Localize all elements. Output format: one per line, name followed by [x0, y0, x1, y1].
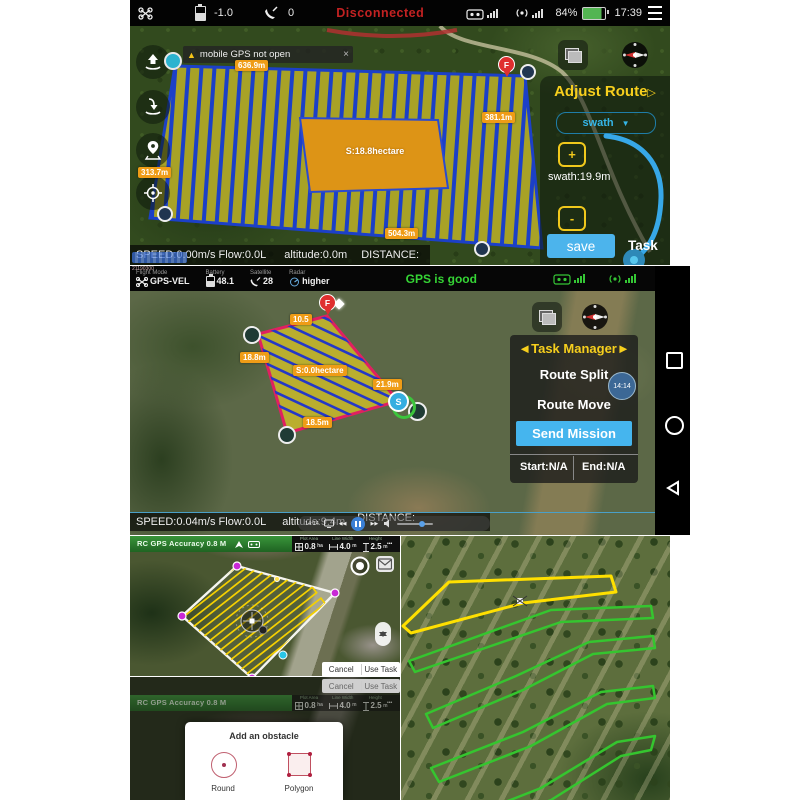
cancel-button[interactable]: Cancel	[322, 682, 361, 691]
edge-length-label: 21.9m	[373, 379, 402, 390]
status-bar: 21190300 Flight Mode GPS-VEL Battery 48.…	[130, 266, 690, 291]
warning-icon: ▲	[187, 50, 196, 60]
screencast-icon	[324, 519, 334, 528]
task-label[interactable]: Task	[628, 238, 658, 253]
decrease-button[interactable]: -	[558, 206, 586, 231]
radar-icon	[289, 277, 300, 287]
satellite-count: 0	[288, 7, 294, 19]
screenshot-collage: -1.0 0 Disconnected 84% 17:39	[0, 0, 800, 800]
remote-controller-icon	[466, 7, 484, 20]
clock: 17:39	[614, 7, 642, 19]
start-marker[interactable]	[164, 52, 182, 70]
vertex-handle[interactable]	[520, 64, 536, 80]
line-width-stat: Line Width 4.0m	[329, 537, 357, 551]
divider	[510, 454, 638, 455]
recents-button[interactable]	[666, 352, 683, 369]
left-arrow-icon[interactable]: ◄	[518, 341, 531, 356]
pause-button[interactable]	[351, 517, 365, 531]
use-task-button[interactable]: Use Task	[362, 682, 401, 691]
connection-status: Disconnected	[336, 6, 424, 20]
envelope-icon	[378, 558, 392, 570]
dialog-title: Add an obstacle	[185, 731, 343, 741]
land-button[interactable]	[136, 90, 170, 124]
edge-length-label: 10.5	[290, 314, 312, 325]
back-button[interactable]	[665, 480, 681, 496]
status-bar: -1.0 0 Disconnected 84% 17:39	[130, 0, 670, 26]
battery-level-icon	[582, 7, 606, 20]
expand-arrow-icon[interactable]: ▷	[647, 87, 655, 99]
video-time: 14:14	[305, 521, 319, 527]
task-action-bar-dimmed: Cancel Use Task	[322, 679, 400, 693]
waypoint-button[interactable]	[136, 133, 170, 167]
watermark	[132, 252, 187, 263]
edge-length-label: 18.8m	[240, 352, 269, 363]
send-mission-button[interactable]: Send Mission	[516, 421, 632, 446]
panel-route-planner: -1.0 0 Disconnected 84% 17:39	[130, 0, 670, 265]
overlay-id: 21190300	[132, 266, 154, 272]
use-task-button[interactable]: Use Task	[362, 665, 401, 674]
divider	[130, 512, 655, 513]
cancel-button[interactable]: Cancel	[322, 665, 361, 674]
plot-area-stat: Plot Area 0.8ha	[295, 537, 323, 551]
polygon-option[interactable]: Polygon	[278, 784, 320, 793]
start-time: Start:N/A	[520, 461, 568, 473]
battery-group: Battery 48.1	[206, 270, 235, 288]
vertex-handle[interactable]	[233, 562, 241, 570]
round-obstacle-icon[interactable]	[211, 752, 237, 778]
compass-icon[interactable]	[621, 41, 649, 69]
home-button[interactable]	[665, 416, 684, 435]
speaker-icon[interactable]	[383, 519, 392, 528]
gps-warning-banner: ▲ mobile GPS not open ×	[183, 46, 353, 63]
video-controls: 14:14 ◀◀ ▶▶	[298, 516, 490, 531]
land-icon	[142, 97, 164, 117]
layers-button[interactable]	[558, 40, 588, 70]
edge-length-label: 636.9m	[235, 60, 268, 71]
altitude: altitude:0.0m	[284, 249, 347, 261]
route-overlay	[401, 536, 670, 800]
round-option[interactable]: Round	[203, 784, 243, 793]
time-badge: 14:14	[608, 372, 636, 400]
remote-controller-icon	[553, 272, 571, 285]
start-marker[interactable]: S	[388, 391, 409, 412]
green-route	[449, 736, 655, 800]
panel-add-obstacle: Cancel Use Task RC GPS Accuracy 0.8 M Pl…	[130, 677, 400, 800]
speed-flow: SPEED:0.04m/s Flow:0.0L	[136, 516, 266, 528]
area-label: S:18.8hectare	[315, 146, 435, 156]
link-signal-bars	[532, 9, 543, 18]
panel-title: Adjust Route▷	[540, 83, 670, 100]
pointer-icon	[234, 540, 244, 549]
save-button[interactable]: save	[547, 234, 615, 258]
rewind-icon[interactable]: ◀◀	[339, 521, 347, 527]
orchard-aerial-photo	[401, 536, 670, 800]
distance: DISTANCE:	[361, 249, 419, 261]
satellite-group: Satellite 28	[250, 270, 273, 287]
compass-icon[interactable]	[581, 303, 609, 331]
task-action-bar: Cancel Use Task	[322, 662, 400, 676]
zoom-stepper[interactable]	[375, 622, 391, 646]
warning-text: mobile GPS not open	[200, 49, 290, 60]
edge-length-label: 381.1m	[482, 112, 515, 123]
vertex-handle[interactable]	[243, 326, 261, 344]
drone-icon	[138, 7, 153, 20]
edge-length-label: 18.5m	[303, 417, 332, 428]
task-manager-panel: ◄Task Manager► Route Split 14:14 Route M…	[510, 335, 638, 483]
vertex-handle[interactable]	[157, 206, 173, 222]
gps-accuracy: RC GPS Accuracy 0.8 M	[137, 539, 226, 548]
layers-button[interactable]	[532, 302, 562, 332]
layers-icon	[565, 48, 581, 62]
green-route	[426, 636, 655, 728]
height-stat: Height 2.5m	[363, 537, 388, 552]
battery-icon	[195, 6, 206, 21]
rc-signal-bars	[574, 274, 585, 283]
add-obstacle-dialog: Add an obstacle Round Polygon	[185, 722, 343, 800]
flight-mode-group: Flight Mode GPS-VEL	[136, 270, 190, 287]
edge-length-label: 504.3m	[385, 228, 418, 239]
vertex-handle[interactable]	[474, 241, 490, 257]
vertex-handle[interactable]	[178, 612, 186, 620]
finish-marker[interactable]: F	[498, 56, 515, 73]
gallery-button[interactable]	[376, 556, 394, 572]
satellite-dish-icon	[263, 6, 278, 20]
location-pin-icon	[142, 140, 164, 160]
menu-icon[interactable]	[648, 6, 662, 20]
forward-icon[interactable]: ▶▶	[370, 521, 378, 527]
area-label: S:0.0hectare	[293, 365, 347, 376]
divider	[573, 456, 574, 480]
antenna-icon	[514, 6, 530, 20]
panel-title: ◄Task Manager►	[510, 341, 638, 356]
increase-button[interactable]: +	[558, 142, 586, 167]
android-nav-bar	[655, 266, 690, 535]
panel-task-manager: 21190300 Flight Mode GPS-VEL Battery 48.…	[130, 266, 690, 535]
plot-area-icon	[295, 543, 303, 551]
swath-value: swath:19.9m	[548, 171, 610, 183]
panel-plot-editor: RC GPS Accuracy 0.8 M Plot Area 0.8ha Li…	[130, 536, 400, 676]
vertex-handle[interactable]	[331, 589, 339, 597]
takeoff-icon	[142, 52, 164, 72]
crosshair-icon	[142, 182, 164, 204]
chevron-down-icon: ▼	[622, 119, 630, 128]
right-arrow-icon[interactable]: ►	[617, 341, 630, 356]
green-route	[431, 686, 655, 782]
rc-signal-bars	[487, 9, 498, 18]
height-icon	[363, 543, 369, 552]
antenna-icon	[607, 272, 623, 286]
close-icon[interactable]: ×	[343, 49, 349, 60]
line-width-icon	[329, 544, 338, 550]
finish-marker[interactable]: F	[319, 294, 336, 311]
locate-button[interactable]	[136, 176, 170, 210]
gps-status: GPS is good	[406, 272, 477, 286]
rc-gps-bar-dimmed: RC GPS Accuracy 0.8 M Plot Area 0.8ha Li…	[130, 695, 400, 711]
edge-length-label: 313.7m	[138, 167, 171, 178]
edge-midpoint-handle[interactable]	[275, 577, 280, 582]
layers-icon	[539, 310, 555, 324]
volume-slider[interactable]	[397, 523, 433, 525]
link-signal-bars	[625, 274, 636, 283]
rc-gps-bar: RC GPS Accuracy 0.8 M Plot Area 0.8ha Li…	[130, 536, 400, 552]
vertex-handle[interactable]	[278, 426, 296, 444]
drone-icon	[136, 277, 148, 287]
gps-dot	[279, 651, 287, 659]
battery-percent: 84%	[555, 7, 577, 19]
plot-map	[130, 536, 400, 676]
more-icon[interactable]: •••	[387, 541, 392, 547]
polygon-obstacle-icon[interactable]	[288, 753, 311, 776]
battery-icon	[206, 276, 215, 287]
end-time: End:N/A	[582, 461, 625, 473]
red-arc	[327, 30, 457, 36]
satellite-dish-icon	[250, 277, 261, 287]
battery-voltage: -1.0	[214, 7, 233, 19]
radar-group: Radar higher	[289, 270, 330, 287]
controller-icon	[248, 540, 260, 549]
